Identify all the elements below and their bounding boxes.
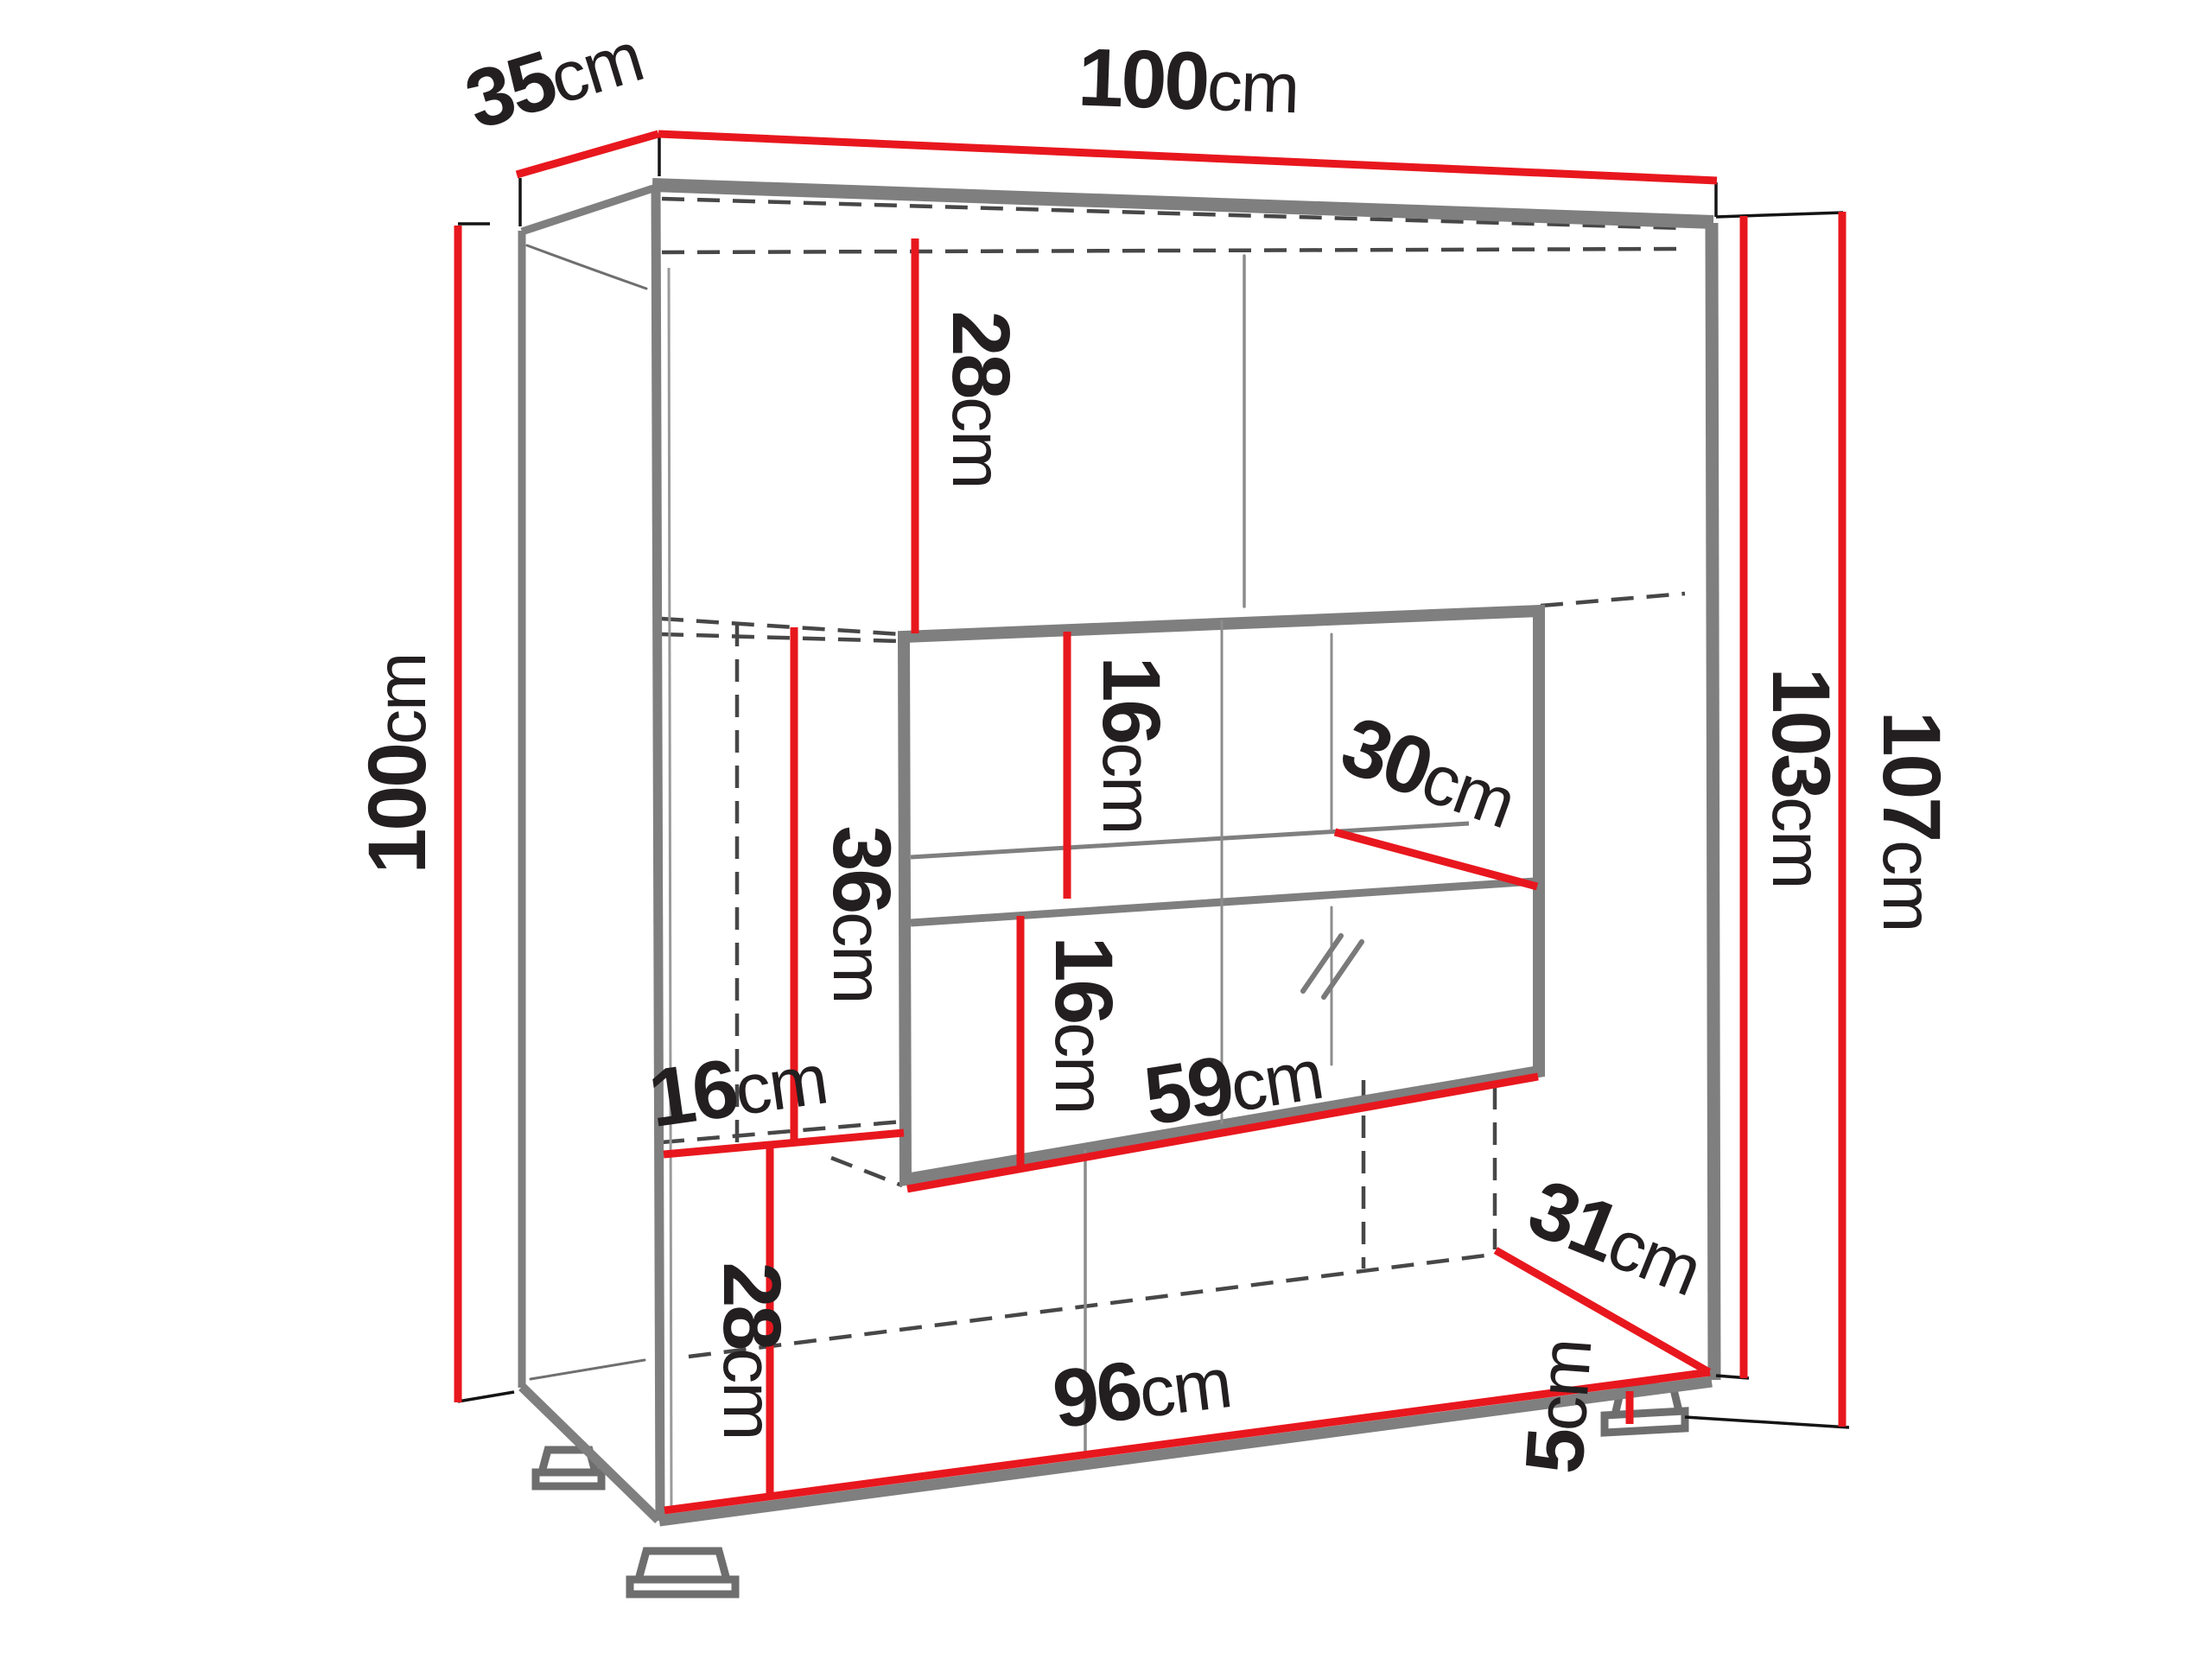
dimension-label-height-left: 100cm	[352, 654, 443, 874]
dimension-label-mid-section-height: 36cm	[816, 826, 907, 1003]
dimension-label-glass-lower-height: 16cm	[1038, 937, 1129, 1114]
front-left-foot-base	[630, 1580, 735, 1594]
dimension-label-glass-upper-height: 16cm	[1085, 657, 1177, 834]
dimension-label-height-body-right: 103cm	[1755, 668, 1847, 888]
front-left-foot-body	[639, 1551, 727, 1580]
diagram-page: 35cm100cm100cm103cm107cm28cm36cm16cm30cm…	[0, 0, 2212, 1659]
left-front-edge	[656, 186, 660, 1521]
dimension-label-bottom-section-height: 28cm	[706, 1262, 798, 1440]
back-left-foot-base	[536, 1472, 601, 1486]
right-front-edge	[1712, 223, 1714, 1380]
front-right-foot-base	[1605, 1411, 1685, 1433]
dimension-label-top-section-height: 28cm	[935, 311, 1027, 488]
cabinet-dimension-diagram: 35cm100cm100cm103cm107cm28cm36cm16cm30cm…	[0, 0, 2212, 1659]
dimension-label-height-total-right: 107cm	[1866, 711, 1957, 931]
